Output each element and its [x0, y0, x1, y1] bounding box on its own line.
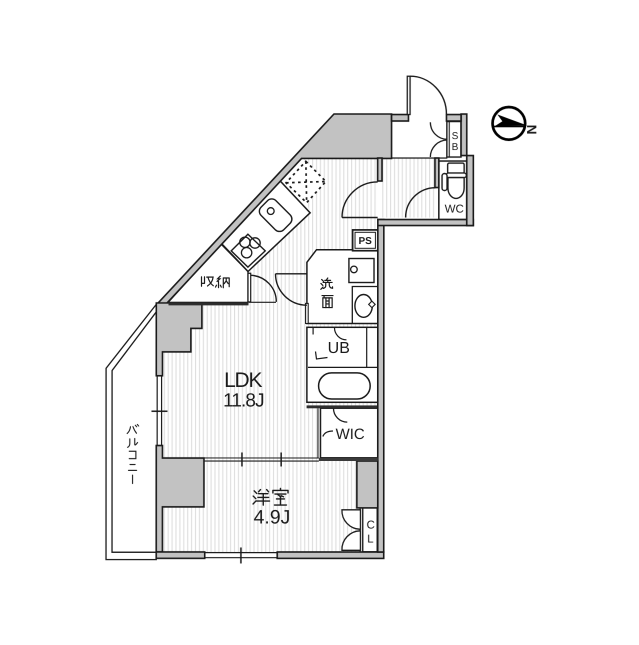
svg-text:C: C	[367, 520, 375, 532]
svg-text:S: S	[452, 131, 459, 142]
svg-text:B: B	[452, 142, 459, 153]
svg-text:LDK: LDK	[224, 369, 262, 392]
svg-text:N: N	[524, 125, 539, 135]
svg-text:11.8J: 11.8J	[223, 390, 264, 411]
svg-text:4.9J: 4.9J	[253, 506, 290, 528]
svg-text:WIC: WIC	[336, 426, 365, 443]
svg-text:PS: PS	[359, 236, 373, 247]
svg-text:WC: WC	[445, 204, 464, 216]
svg-text:UB: UB	[328, 340, 350, 357]
svg-text:L: L	[367, 534, 374, 546]
